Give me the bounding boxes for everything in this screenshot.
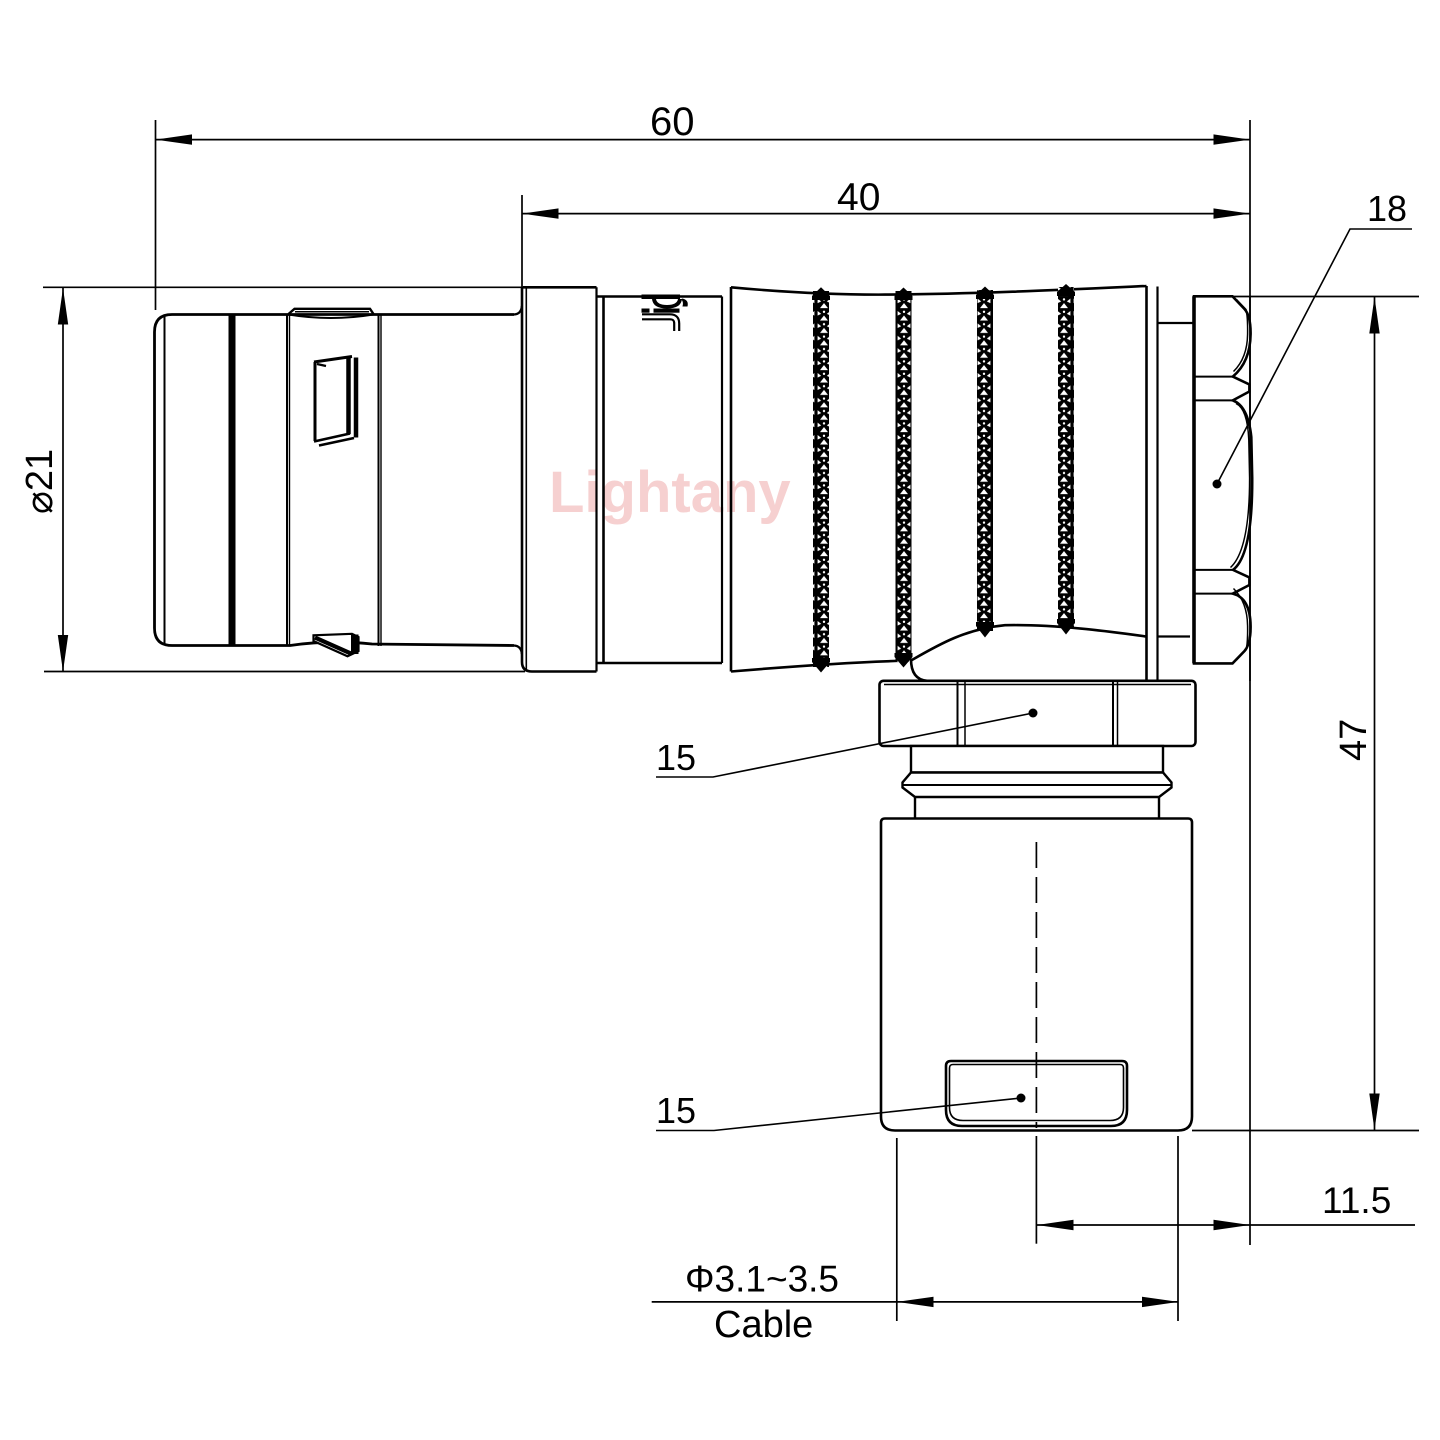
svg-text:47: 47 — [1333, 719, 1375, 761]
svg-text:40: 40 — [837, 176, 880, 219]
svg-text:15: 15 — [656, 737, 696, 778]
svg-text:11.5: 11.5 — [1322, 1180, 1391, 1221]
svg-text:Lightany: Lightany — [549, 460, 791, 525]
svg-text:60: 60 — [650, 100, 695, 144]
svg-text:Cable: Cable — [714, 1304, 813, 1346]
svg-text:Φ3.1~3.5: Φ3.1~3.5 — [685, 1259, 839, 1300]
svg-text:15: 15 — [656, 1090, 696, 1131]
svg-text:⌀21: ⌀21 — [19, 449, 61, 514]
svg-text:18: 18 — [1367, 188, 1407, 229]
